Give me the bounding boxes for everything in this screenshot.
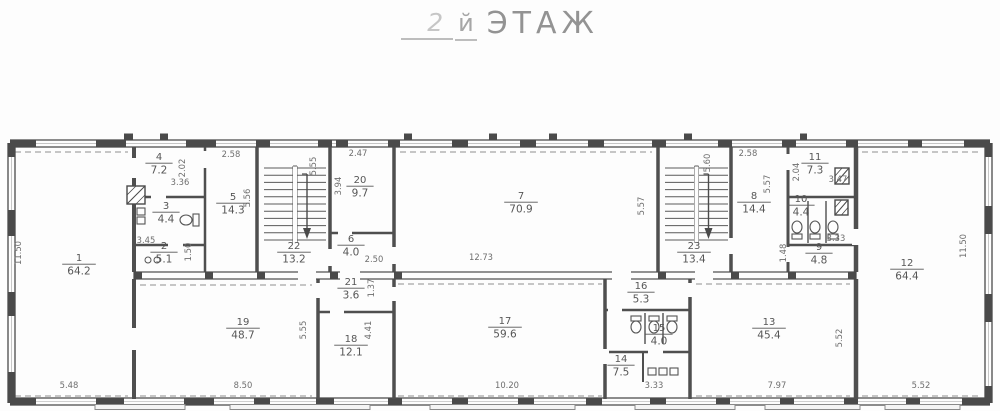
room-area: 4.4 (793, 207, 810, 219)
door-opening (695, 271, 713, 280)
room-label-20: 209.7 (346, 175, 373, 200)
dim-label: 5.56 (242, 189, 252, 208)
room-number: 12 (901, 258, 914, 269)
room-label-19: 1948.7 (226, 317, 260, 342)
room-area: 5.1 (156, 254, 173, 266)
sink-icon (648, 368, 656, 375)
dim-label: 12.73 (469, 252, 493, 262)
wall-pier (586, 398, 602, 406)
screenshot-root: 2йЭТАЖ 164.225.134.447.2514.364.0770.981… (0, 0, 1000, 411)
wall-pier (588, 140, 604, 148)
fixture-icon (145, 257, 151, 263)
toilet-tank (631, 316, 641, 321)
staircase-right (665, 166, 728, 243)
door-opening (390, 287, 398, 301)
room-number: 17 (499, 316, 512, 327)
dim-label: 2.58 (222, 149, 241, 159)
dim-label: 2.02 (177, 159, 187, 178)
room-area: 64.2 (67, 266, 90, 278)
wall-pier (718, 140, 732, 148)
room-number: 6 (348, 234, 354, 245)
dim-label: 5.60 (702, 154, 712, 173)
wall-pier (782, 140, 796, 148)
room-label-16: 165.3 (627, 281, 654, 306)
dim-label: 4.41 (363, 321, 373, 340)
wall-pier (908, 140, 922, 148)
stair-gap (695, 166, 699, 243)
room-label-8: 814.4 (737, 191, 771, 216)
room-number: 1 (76, 253, 82, 264)
wall-pier (8, 210, 16, 236)
wall-pier (186, 140, 216, 148)
room-area: 7.2 (151, 165, 168, 177)
room-area: 59.6 (493, 329, 517, 341)
wall-pier (985, 143, 993, 157)
room-label-22: 2213.2 (277, 241, 311, 266)
room-number: 8 (751, 191, 757, 202)
dim-label: 7.97 (768, 380, 787, 390)
toilet-tank (193, 214, 199, 226)
dim-label: 1.37 (366, 279, 376, 298)
room-area: 4.4 (158, 214, 175, 226)
sink-icon (659, 368, 667, 375)
dim-label: 5.52 (834, 329, 844, 348)
room-label-23: 2313.4 (677, 241, 711, 266)
room-number: 19 (237, 317, 250, 328)
dim-label: 3.36 (171, 177, 190, 187)
toilet-icon (667, 316, 677, 333)
room-number: 9 (816, 242, 822, 253)
dim-label: 1.48 (778, 244, 788, 263)
room-label-7: 770.9 (504, 191, 538, 216)
room-area: 48.7 (231, 330, 254, 342)
room-label-13: 1345.4 (752, 317, 786, 342)
dim-label: 3.33 (827, 233, 846, 243)
room-number: 11 (809, 152, 822, 163)
room-label-14: 147.5 (607, 354, 634, 379)
room-number: 23 (688, 241, 701, 252)
room-label-21: 213.6 (337, 277, 364, 302)
wall-pier (318, 140, 332, 148)
room-label-4: 47.2 (145, 152, 172, 177)
wall-pier (652, 140, 666, 148)
toilet-icon (180, 215, 192, 225)
door-opening (151, 194, 166, 200)
toilet-icon (810, 221, 820, 239)
dim-label: 5.52 (912, 380, 931, 390)
wall-pier (8, 372, 16, 392)
door-opening (784, 154, 791, 170)
room-label-6: 64.0 (337, 234, 364, 259)
spine-pier (658, 272, 666, 280)
wall-pier (452, 140, 468, 148)
room-area: 12.1 (339, 347, 362, 359)
room-number: 5 (230, 192, 236, 203)
dim-label: 2.47 (349, 148, 368, 158)
shaft-hatch-icon (127, 186, 145, 204)
room-number: 22 (288, 241, 301, 252)
exterior-slab (885, 405, 960, 410)
room-area: 9.7 (352, 188, 369, 200)
dim-label: 2.58 (739, 148, 758, 158)
dim-label: 3.45 (137, 235, 156, 245)
door-opening (202, 151, 208, 168)
room-number: 10 (795, 194, 808, 205)
exterior-slab (230, 405, 370, 410)
toilet-tank (649, 316, 659, 321)
toilet-tank (667, 316, 677, 321)
toilet-tank (792, 234, 802, 239)
door-opening (298, 271, 316, 280)
room-label-3: 34.4 (152, 201, 179, 226)
exterior-slab (430, 405, 575, 410)
spine-pier (394, 272, 402, 280)
dim-label: 11.50 (13, 241, 23, 265)
dim-label: 3.94 (333, 177, 343, 196)
dim-label: 5.57 (762, 175, 772, 194)
room-label-1: 164.2 (62, 253, 96, 278)
room-number: 15 (653, 323, 666, 334)
vent-stub (489, 134, 497, 141)
exterior-slab (635, 405, 735, 410)
door-opening (648, 349, 663, 355)
vent-stub (160, 134, 168, 141)
spine-pier (731, 272, 739, 280)
door-opening (314, 283, 322, 298)
dim-label: 11.50 (958, 234, 968, 258)
toilet-tank (810, 234, 820, 239)
room-label-11: 117.3 (801, 152, 828, 177)
stair-gap (293, 166, 297, 243)
room-area: 4.0 (343, 247, 360, 259)
room-area: 14.4 (742, 204, 766, 216)
room-area: 5.3 (633, 294, 650, 306)
wall-pier (388, 140, 400, 148)
door-opening (168, 242, 183, 248)
dim-label: 5.57 (636, 197, 646, 216)
room-label-12: 1264.4 (890, 258, 924, 283)
dim-label: 10.20 (495, 380, 519, 390)
spine-wall (134, 272, 856, 279)
door-opening (131, 328, 138, 350)
sink-icon (137, 217, 145, 224)
room-area: 13.4 (682, 254, 706, 266)
wall-pier (256, 140, 270, 148)
room-area: 70.9 (509, 204, 532, 216)
wall-pier (184, 398, 214, 406)
exterior-slab (765, 405, 860, 410)
room-area: 3.6 (343, 290, 360, 302)
wall-pier (985, 386, 993, 403)
door-opening (612, 271, 631, 280)
room-number: 7 (518, 191, 524, 202)
dim-label: 2.04 (791, 163, 801, 182)
room-number: 2 (161, 241, 167, 252)
spine-pier (788, 272, 796, 280)
door-opening (390, 247, 398, 264)
sink-icon (137, 208, 145, 215)
dim-label: 2.50 (365, 254, 384, 264)
sink-icon (670, 368, 678, 375)
room-area: 7.5 (613, 367, 630, 379)
wall-pier (96, 140, 126, 148)
door-opening (330, 309, 344, 315)
wall-pier (846, 140, 858, 148)
spine-pier (205, 272, 213, 280)
door-opening (852, 229, 860, 245)
vent-stub (124, 134, 133, 141)
room-area: 64.4 (895, 271, 919, 283)
room-number: 20 (354, 175, 367, 186)
wall-pier (8, 392, 16, 403)
wall-pier (8, 143, 16, 157)
door-opening (601, 349, 609, 364)
dim-label: 8.50 (234, 380, 253, 390)
shaft-hatch-icon (835, 200, 848, 215)
dim-label: 3.47 (829, 174, 848, 184)
room-number: 13 (763, 317, 776, 328)
room-area: 13.2 (282, 254, 305, 266)
wall-pier (985, 294, 993, 322)
dim-label: 5.55 (308, 157, 318, 176)
spine-pier (848, 272, 856, 280)
room-number: 18 (345, 334, 358, 345)
room-area: 7.3 (807, 165, 824, 177)
spine-pier (330, 272, 338, 280)
dim-label: 3.33 (645, 380, 664, 390)
door-opening (686, 283, 694, 297)
room-number: 3 (163, 201, 169, 212)
room-label-17: 1759.6 (488, 316, 522, 341)
stair-down-arrow-icon (303, 228, 311, 239)
vent-stub (800, 134, 807, 141)
wall-pier (985, 206, 993, 234)
room-number: 16 (635, 281, 648, 292)
wall-pier (520, 140, 536, 148)
staircase-left (264, 166, 326, 243)
room-number: 21 (345, 277, 358, 288)
room-number: 14 (615, 354, 628, 365)
room-area: 4.8 (811, 255, 828, 267)
wall-pier (8, 292, 16, 316)
door-opening (131, 158, 138, 178)
door-opening (326, 249, 334, 266)
room-area: 45.4 (757, 330, 781, 342)
room-number: 4 (156, 152, 162, 163)
wall-pier (336, 140, 348, 148)
spine-pier (257, 272, 265, 280)
spine-pier (134, 272, 142, 280)
toilet-icon (631, 316, 641, 333)
door-opening (727, 238, 735, 254)
dim-label: 1.50 (183, 243, 193, 262)
exterior-slab (95, 405, 185, 410)
vent-stub (549, 134, 557, 141)
floor-plan: 164.225.134.447.2514.364.0770.9814.494.8… (0, 0, 1000, 411)
vent-stub (404, 134, 412, 141)
dim-label: 5.48 (60, 380, 79, 390)
stair-down-arrow-icon (705, 228, 713, 239)
room-area: 4.0 (651, 336, 668, 348)
toilet-icon (792, 221, 802, 239)
dim-label: 5.55 (298, 321, 308, 340)
door-opening (608, 307, 622, 313)
vent-stub (684, 134, 692, 141)
